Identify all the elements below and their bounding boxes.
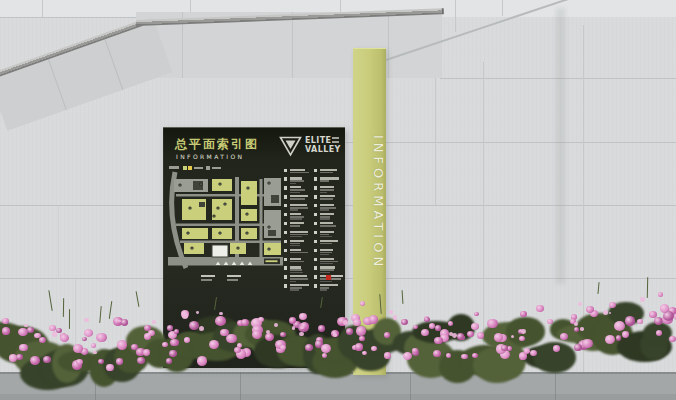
flower-blossom bbox=[433, 350, 441, 357]
legend-item bbox=[314, 186, 342, 194]
legend-item bbox=[314, 168, 342, 176]
map-poi-dot-center bbox=[200, 183, 201, 184]
flower-blossom bbox=[656, 330, 663, 336]
legend-item bbox=[314, 213, 342, 221]
map-poi-dot-center bbox=[217, 207, 218, 208]
flower-blossom bbox=[346, 328, 354, 335]
flower-stem bbox=[99, 306, 102, 323]
legend-item-number bbox=[314, 240, 317, 243]
legend-item-text bbox=[290, 231, 308, 233]
flower-blossom bbox=[474, 312, 479, 317]
legend-item bbox=[284, 204, 312, 212]
elite-valley-logo: ELITE VALLEY bbox=[279, 135, 341, 161]
legend-item-number bbox=[284, 258, 287, 261]
legend-item-text bbox=[320, 213, 334, 215]
flower-highlight bbox=[299, 332, 304, 337]
legend-item-subtext bbox=[320, 218, 330, 219]
legend-item-number bbox=[284, 204, 287, 207]
flower-blossom bbox=[421, 329, 429, 336]
logo-line1: ELITE bbox=[305, 136, 331, 145]
flower-blossom bbox=[536, 305, 544, 312]
legend-item-number bbox=[284, 195, 287, 198]
flower-blossom bbox=[9, 354, 17, 361]
legend-item-text bbox=[290, 177, 302, 179]
flower-blossom bbox=[574, 344, 582, 351]
map-poi-dot-center bbox=[189, 207, 190, 208]
legend-item-text bbox=[290, 186, 301, 188]
map-key-strip bbox=[169, 166, 279, 170]
flower-blossom bbox=[166, 358, 173, 364]
legend-item-number bbox=[314, 169, 317, 172]
flower-blossom bbox=[663, 311, 674, 321]
map-poi-dot-center bbox=[268, 248, 269, 249]
legend-item bbox=[284, 186, 312, 194]
legend-item-text bbox=[320, 195, 335, 197]
pylon-label: INFORMATION bbox=[353, 135, 386, 270]
map-key-swatch bbox=[183, 166, 187, 170]
logo-line2: VALLEY bbox=[305, 145, 341, 154]
map-poi-dot-center bbox=[219, 232, 220, 233]
flower-blossom bbox=[384, 332, 390, 338]
legend-item-subtext bbox=[290, 198, 305, 200]
flower-stem bbox=[320, 296, 323, 307]
flower-highlight bbox=[580, 327, 584, 331]
legend-item-text bbox=[290, 266, 301, 268]
flower-blossom bbox=[616, 335, 622, 340]
flower-stem bbox=[214, 297, 217, 310]
legend-item bbox=[314, 221, 342, 229]
flower-blossom bbox=[19, 344, 27, 352]
legend-item-number bbox=[314, 195, 317, 198]
legend-item bbox=[314, 239, 342, 247]
flower-highlight bbox=[452, 333, 457, 338]
flower-blossom bbox=[586, 306, 594, 313]
wall-joint bbox=[435, 78, 436, 205]
flower-blossom bbox=[401, 319, 408, 325]
map-poi-dot-center bbox=[179, 184, 180, 185]
flower-blossom bbox=[369, 315, 378, 323]
legend-item-subtext bbox=[320, 263, 333, 264]
wall-joint bbox=[292, 12, 293, 78]
legend-item-subtext bbox=[290, 172, 309, 174]
legend-item-text bbox=[290, 204, 307, 206]
map-building-yg bbox=[241, 228, 257, 239]
flower-blossom bbox=[184, 337, 190, 342]
legend-item-number bbox=[314, 249, 317, 252]
flower-blossom bbox=[434, 337, 442, 345]
legend-item-number bbox=[314, 258, 317, 261]
legend-item bbox=[284, 213, 312, 221]
legend-item-number bbox=[284, 213, 287, 216]
legend-item-subtext bbox=[320, 192, 327, 193]
flower-blossom bbox=[220, 329, 228, 337]
flower-stem bbox=[69, 309, 70, 329]
flower-blossom bbox=[116, 358, 123, 364]
map-poi-dot-center bbox=[268, 226, 269, 227]
map-poi-dot-center bbox=[219, 183, 220, 184]
flower-highlight bbox=[640, 297, 645, 302]
legend-item-text bbox=[320, 186, 334, 188]
legend-item bbox=[314, 257, 342, 265]
flower-highlight bbox=[511, 335, 514, 338]
map-poi-dot-center bbox=[246, 232, 247, 233]
flower-blossom bbox=[359, 336, 364, 341]
flower-blossom bbox=[162, 342, 168, 347]
legend-item-text bbox=[320, 177, 339, 179]
legend-item-subtext bbox=[290, 225, 300, 227]
legend-item-text bbox=[320, 222, 333, 224]
flower-blossom bbox=[189, 321, 199, 330]
legend-item-subtext bbox=[290, 218, 302, 219]
map-building-yg bbox=[184, 243, 204, 254]
flower-stem bbox=[647, 277, 649, 298]
flower-blossom bbox=[625, 316, 635, 325]
legend-item-text bbox=[290, 213, 301, 215]
flower-highlight bbox=[118, 320, 121, 323]
legend-item-text bbox=[290, 169, 305, 171]
wall-joint bbox=[346, 142, 676, 143]
legend-item bbox=[314, 177, 342, 185]
flower-blossom bbox=[237, 343, 242, 348]
map-poi-dot-center bbox=[237, 247, 238, 248]
legend-item bbox=[314, 230, 342, 238]
map-key-text bbox=[212, 167, 221, 170]
wall-joint bbox=[42, 0, 43, 17]
flower-blossom bbox=[461, 354, 467, 360]
map-building-yg bbox=[212, 228, 232, 239]
flower-stem bbox=[379, 294, 382, 314]
flower-highlight bbox=[343, 320, 348, 325]
map-building-yg bbox=[264, 243, 281, 255]
flower-blossom bbox=[471, 323, 479, 330]
legend-item-text bbox=[290, 258, 301, 260]
flower-blossom bbox=[60, 334, 69, 342]
legend-item-number bbox=[314, 177, 317, 180]
legend-item-text bbox=[320, 266, 335, 268]
logo-cn-text bbox=[332, 141, 339, 143]
flower-stem bbox=[401, 290, 403, 304]
legend-item-subtext bbox=[290, 252, 308, 254]
wall-joint bbox=[502, 0, 503, 16]
legend-item-subtext bbox=[290, 192, 300, 193]
flower-highlight bbox=[52, 331, 57, 336]
flower-blossom bbox=[170, 339, 178, 346]
legend-item-text bbox=[290, 222, 304, 224]
flower-highlight bbox=[393, 315, 397, 319]
flower-blossom bbox=[494, 333, 504, 342]
flower-blossom bbox=[547, 319, 553, 324]
legend-item-subtext bbox=[320, 243, 332, 245]
flower-highlight bbox=[389, 310, 393, 314]
flower-blossom bbox=[18, 328, 27, 337]
map-road-label-text bbox=[266, 260, 278, 262]
map-poi-dot-center bbox=[213, 215, 214, 216]
legend-item bbox=[284, 195, 312, 203]
map-key-text bbox=[194, 167, 203, 170]
legend-item-number bbox=[314, 186, 317, 189]
legend-item-number bbox=[284, 186, 287, 189]
legend-item-text bbox=[320, 249, 333, 251]
flower-highlight bbox=[578, 302, 582, 306]
flower-blossom bbox=[167, 325, 173, 330]
flower-highlight bbox=[521, 329, 526, 334]
foliage-blob bbox=[506, 317, 545, 346]
flower-blossom bbox=[448, 321, 454, 326]
flower-blossom bbox=[637, 319, 643, 324]
legend-item bbox=[314, 248, 342, 256]
flower-highlight bbox=[152, 320, 156, 324]
legend-item bbox=[284, 239, 312, 247]
legend-item bbox=[284, 257, 312, 265]
legend-item-number bbox=[314, 204, 317, 207]
legend-item-subtext bbox=[320, 209, 329, 210]
flower-blossom bbox=[299, 313, 307, 320]
flower-blossom bbox=[609, 302, 616, 308]
flower-blossom bbox=[446, 353, 451, 358]
flower-blossom bbox=[84, 329, 93, 337]
legend-item-subtext bbox=[320, 172, 333, 174]
map-poi-dot-center bbox=[246, 213, 247, 214]
legend-item-number bbox=[284, 240, 287, 243]
map-poi-dot-center bbox=[187, 232, 188, 233]
flower-blossom bbox=[215, 316, 226, 326]
legend-item-subtext bbox=[290, 236, 302, 237]
wall-joint bbox=[103, 35, 123, 90]
flower-blossom bbox=[121, 319, 128, 325]
legend-item-number bbox=[284, 249, 287, 252]
flower-blossom bbox=[318, 325, 326, 332]
legend-item-text bbox=[320, 240, 338, 242]
triangle-logo-icon bbox=[279, 136, 302, 157]
flower-blossom bbox=[82, 337, 87, 342]
map-building-dark bbox=[199, 202, 205, 207]
map-key-text bbox=[169, 166, 179, 169]
flower-blossom bbox=[174, 329, 179, 334]
site-map-svg bbox=[168, 171, 283, 271]
flower-blossom bbox=[467, 331, 474, 337]
flower-highlight bbox=[24, 324, 27, 327]
flower-stem bbox=[62, 298, 64, 317]
flower-blossom bbox=[435, 325, 441, 330]
wall-joint bbox=[58, 205, 59, 278]
flower-blossom bbox=[519, 336, 525, 341]
wall-joint bbox=[455, 0, 456, 32]
flower-blossom bbox=[412, 348, 417, 353]
flower-blossom bbox=[117, 340, 128, 350]
flower-blossom bbox=[169, 350, 177, 357]
flower-blossom bbox=[106, 364, 113, 371]
map-road bbox=[180, 241, 281, 244]
legend-item bbox=[314, 195, 342, 203]
flower-highlight bbox=[196, 311, 199, 314]
legend-item-subtext bbox=[320, 225, 336, 227]
legend-item-number bbox=[314, 213, 317, 216]
legend-item bbox=[284, 230, 312, 238]
flower-blossom bbox=[477, 332, 484, 338]
map-poi-dot-center bbox=[191, 247, 192, 248]
legend-item bbox=[284, 221, 312, 229]
legend-item-number bbox=[314, 222, 317, 225]
legend-item-text bbox=[290, 195, 308, 197]
map-poi-dot-center bbox=[224, 203, 225, 204]
legend-item-number bbox=[314, 231, 317, 234]
flower-blossom bbox=[76, 359, 83, 365]
map-key-swatch bbox=[188, 166, 192, 170]
flower-stem bbox=[49, 290, 54, 311]
wall-joint bbox=[46, 55, 66, 110]
flower-blossom bbox=[96, 333, 106, 342]
flower-blossom bbox=[91, 343, 97, 348]
legend-item-number bbox=[284, 169, 287, 172]
legend-item bbox=[284, 248, 312, 256]
flower-highlight bbox=[266, 330, 270, 334]
legend-item bbox=[284, 168, 312, 176]
flower-blossom bbox=[574, 327, 579, 332]
flower-blossom bbox=[98, 359, 103, 364]
map-building-dark bbox=[268, 230, 276, 236]
legend-item-subtext bbox=[290, 245, 300, 246]
flower-blossom bbox=[252, 330, 262, 339]
map-road bbox=[260, 179, 263, 257]
legend-item-subtext bbox=[290, 261, 304, 263]
flower-blossom bbox=[356, 326, 366, 335]
flower-stem bbox=[135, 291, 139, 307]
flower-blossom bbox=[355, 343, 363, 350]
sign-subtitle: INFORMATION bbox=[176, 153, 244, 160]
legend-item-subtext bbox=[320, 254, 329, 255]
map-building-yg bbox=[241, 209, 257, 221]
flower-blossom bbox=[520, 311, 526, 317]
flower-blossom bbox=[322, 353, 327, 358]
flower-blossom bbox=[660, 304, 669, 312]
flower-blossom bbox=[258, 317, 264, 322]
legend-item bbox=[314, 204, 342, 212]
flower-blossom bbox=[384, 352, 391, 358]
flower-highlight bbox=[219, 312, 223, 316]
flower-blossom bbox=[658, 292, 663, 297]
legend-item-number bbox=[284, 222, 287, 225]
map-building-white bbox=[212, 245, 228, 257]
flower-blossom bbox=[457, 333, 464, 340]
logo-text: ELITE VALLEY bbox=[305, 136, 341, 154]
flower-blossom bbox=[137, 357, 145, 364]
flower-blossom bbox=[424, 317, 430, 323]
flower-blossom bbox=[197, 356, 207, 365]
legend-item-subtext bbox=[290, 183, 296, 184]
flower-highlight bbox=[300, 326, 303, 329]
legend-item-text bbox=[290, 240, 304, 242]
sign-title: 总平面索引图 bbox=[175, 136, 259, 153]
flower-blossom bbox=[614, 321, 625, 331]
legend-item-number bbox=[284, 177, 287, 180]
map-building-dark bbox=[271, 195, 279, 203]
map-poi-dot-center bbox=[247, 187, 248, 188]
flower-blossom bbox=[501, 345, 508, 351]
legend-item-subtext bbox=[320, 198, 333, 200]
legend-item-text bbox=[320, 169, 337, 171]
flower-blossom bbox=[360, 301, 365, 306]
legend-item-number bbox=[284, 231, 287, 234]
flower-blossom bbox=[622, 331, 629, 337]
flower-stem bbox=[108, 301, 112, 319]
legend-item-text bbox=[320, 204, 334, 206]
flower-stem bbox=[597, 282, 599, 294]
flower-highlight bbox=[84, 318, 88, 322]
map-building-yg bbox=[182, 228, 208, 239]
map-key-swatch bbox=[206, 166, 210, 170]
legend-item-text bbox=[320, 258, 334, 260]
legend-item-subtext bbox=[320, 180, 329, 182]
flower-blossom bbox=[669, 336, 676, 342]
map-poi-dot-center bbox=[268, 182, 269, 183]
flower-blossom bbox=[553, 345, 561, 352]
flower-blossom bbox=[209, 340, 219, 349]
flower-highlight bbox=[333, 333, 337, 337]
wall-joint bbox=[388, 12, 389, 78]
flower-blossom bbox=[34, 333, 40, 339]
legend-item-subtext bbox=[320, 236, 332, 237]
site-map bbox=[168, 171, 283, 271]
legend-item-text bbox=[320, 231, 334, 233]
flower-highlight bbox=[182, 313, 187, 318]
azalea-flower-bed bbox=[0, 270, 676, 400]
logo-cn-text bbox=[332, 137, 339, 139]
map-building-yg bbox=[212, 179, 232, 191]
legend-item-text bbox=[290, 249, 301, 251]
legend-item-subtext bbox=[290, 209, 298, 210]
flower-blossom bbox=[30, 356, 40, 365]
flower-blossom bbox=[582, 339, 593, 349]
map-building-yg bbox=[241, 181, 257, 205]
legend-item bbox=[284, 177, 312, 185]
water-stain bbox=[556, 8, 565, 284]
